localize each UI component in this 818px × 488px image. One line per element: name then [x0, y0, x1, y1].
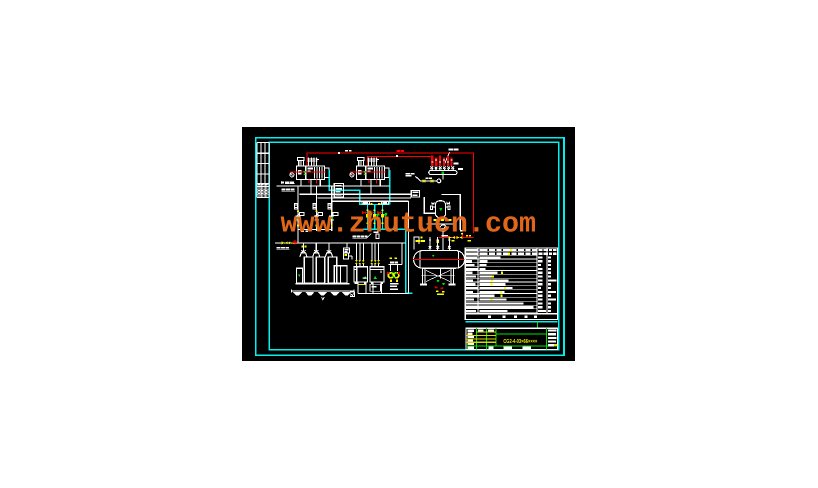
svg-text:CG2-4-03×66××××: CG2-4-03×66×××× — [503, 339, 538, 345]
svg-text:www.zhutucn.com: www.zhutucn.com — [281, 208, 537, 241]
